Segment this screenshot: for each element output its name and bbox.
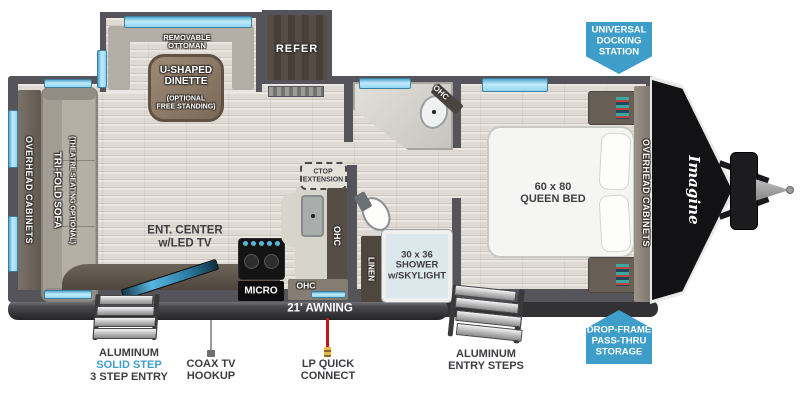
bath-wall-left [344, 76, 353, 142]
rear-window-lower [8, 216, 18, 272]
storage-badge-label: DROP-FRAME PASS-THRU STORAGE [587, 326, 651, 359]
docking-badge-label: UNIVERSAL DOCKING STATION [592, 26, 647, 59]
sofa-option-label: (THEATRE SEATING OPTIONAL) [69, 136, 76, 244]
shower-label: 30 x 36 SHOWER w/SKYLIGHT [388, 250, 446, 281]
sofa-armrest-top [43, 88, 96, 100]
propane-cover [730, 152, 758, 230]
burner-icon [264, 254, 279, 269]
sofa-window-top [44, 79, 92, 88]
refrigerator-vent [268, 86, 324, 97]
stove-knob-icon [259, 241, 264, 246]
step-bar [99, 295, 154, 305]
faucet-icon [311, 214, 315, 218]
stove-knob-icon [267, 241, 272, 246]
solid-step-label-line3: 3 STEP ENTRY [90, 371, 168, 383]
ctop-extension-label: CTOP EXTENSION [303, 168, 343, 183]
awning-label: 21' AWNING [287, 303, 353, 316]
kitchen-window [311, 291, 346, 298]
hitch-ball-icon [786, 186, 794, 194]
dinette-bench-right [232, 26, 254, 90]
floorplan-canvas: { "branding": { "logo": "Imagine" }, "ba… [0, 0, 800, 400]
coax-connector-icon [207, 350, 215, 357]
rear-overhead-cabinets-label: OVERHEAD CABINETS [24, 136, 34, 244]
bed-label: 60 x 80 QUEEN BED [520, 181, 585, 205]
coax-wire-icon [210, 320, 212, 353]
pillow-icon [599, 194, 632, 252]
step-bar [93, 328, 158, 339]
bathroom-faucet-icon [432, 110, 436, 114]
ottoman-label: REMOVABLE OTTOMAN [163, 34, 210, 51]
lp-label: LP QUICK CONNECT [301, 358, 355, 382]
brand-logo: Imagine [685, 155, 703, 224]
ent-center-label: ENT. CENTER w/LED TV [147, 224, 222, 249]
sofa-seat [62, 96, 95, 292]
stove-knob-icon [275, 241, 280, 246]
dinette-option-label: (OPTIONAL FREE STANDING) [157, 95, 216, 110]
kitchen-bath-wall [347, 165, 357, 290]
burner-icon [244, 254, 259, 269]
nightstand-decor [616, 264, 629, 286]
dinette-label: U-SHAPED DINETTE [160, 65, 212, 87]
rear-window-upper [8, 110, 18, 168]
lp-wire-icon [326, 318, 329, 349]
step-bar [96, 306, 155, 316]
sofa-label: TRI-FOLD SOFA [52, 152, 63, 229]
pantry-ohc-label: OHC [332, 226, 342, 246]
awning-tube [8, 299, 448, 320]
solid-step-label-line1: ALUMINUM [99, 347, 159, 359]
stove-knob-icon [251, 241, 256, 246]
solid-step-label-line2: SOLID STEP [96, 359, 161, 371]
lp-connector-icon [324, 347, 331, 357]
nightstand-decor [616, 97, 629, 119]
sofa-cushion-line [62, 160, 95, 161]
vanity-window [359, 78, 411, 89]
entry-steps-left [92, 294, 159, 342]
kitchen-ohc-label: OHC [297, 281, 316, 290]
entry-steps-label: ALUMINUM ENTRY STEPS [448, 348, 524, 372]
coax-label: COAX TV HOOKUP [187, 358, 236, 382]
dinette-slide-window [124, 16, 252, 28]
sofa-window-bottom [44, 290, 92, 299]
linen-label: LINEN [367, 257, 376, 281]
pillow-icon [599, 132, 632, 190]
slide-side-window [97, 50, 107, 88]
sofa-cushion-line [62, 226, 95, 227]
bath-wall-right-lower [452, 198, 461, 290]
bedroom-window [482, 78, 548, 92]
microwave-label: MICRO [244, 286, 277, 297]
stove-knob-icon [243, 241, 248, 246]
bed-overhead-cabinets-label: OVERHEAD CABINETS [641, 139, 651, 247]
step-bar [93, 317, 156, 327]
entry-steps-right [447, 282, 527, 347]
refrigerator-label: REFER [276, 43, 318, 55]
